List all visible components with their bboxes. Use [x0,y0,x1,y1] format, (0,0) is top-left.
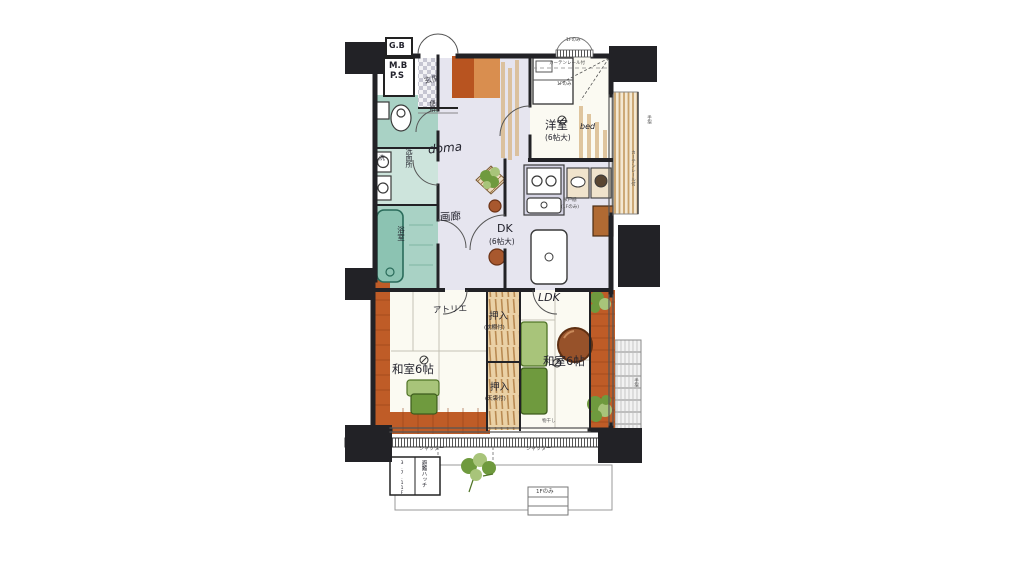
label-escape-floors: 3.7.11F [399,461,404,496]
label-shutter-left: シャッター [419,447,444,452]
label-hanging-cupboard: 吊戸棚 [563,199,577,204]
label-1f-only-top-window: 1Fのみ [566,39,580,44]
label-dk-size: (6帖大) [489,238,515,246]
label-toilet: 便所 [428,100,434,112]
label-atelier: アトリエ [433,305,467,315]
label-gb-meter-box: G.B [389,42,405,50]
label-ps-shaft: P.S [390,72,404,81]
label-handrail-bottom: 手摺 [633,378,638,387]
label-dk: DK [497,223,513,234]
label-curtain-rail: カーテンレール付 [549,62,585,67]
label-closet-top-note: (枕棚付) [484,326,505,332]
label-closet-bottom-note: (天袋付) [485,397,506,403]
label-mb-shaft: M.B [389,62,407,71]
label-washitsu-right: 和室6帖 [543,356,585,368]
floor-plan-page: G.B M.B P.S 玄関 便所 洗面所 洗 浴室 doma 画廊 洋室 be… [0,0,1024,585]
label-1f-only-bedroom: 1Fのみ [557,83,571,88]
label-bed: bed [580,123,595,131]
label-hanging-cupboard-note: (1Fのみ) [561,206,579,211]
label-handrail-top: 手摺 [646,115,651,124]
right-room-sofa [521,322,547,414]
label-bathroom: 浴室 [397,226,405,241]
label-closet-top: 押入 [489,312,508,322]
label-laundry: 洗 [379,156,385,162]
label-curtain-rail-side: カーテンレール付 [630,150,635,186]
label-shutter-right: シャッター [526,447,551,452]
label-doma: doma [428,141,463,156]
label-drying: 物干し [542,420,556,425]
label-washroom: 洗面所 [405,147,412,168]
label-escape-hatch: 避難ハッチ [420,460,426,488]
label-1f-only-steps: 1Fのみ [536,490,554,496]
window-sills [556,50,593,57]
label-washitsu-left: 和室6帖 [392,364,434,376]
label-closet-bottom: 押入 [490,383,509,393]
label-western-room: 洋室 [545,120,568,132]
floor-plan-drawing [343,10,663,545]
label-ldk: LDK [538,292,560,303]
label-western-room-size: (6帖大) [545,134,571,142]
label-gallery: 画廊 [440,211,462,223]
